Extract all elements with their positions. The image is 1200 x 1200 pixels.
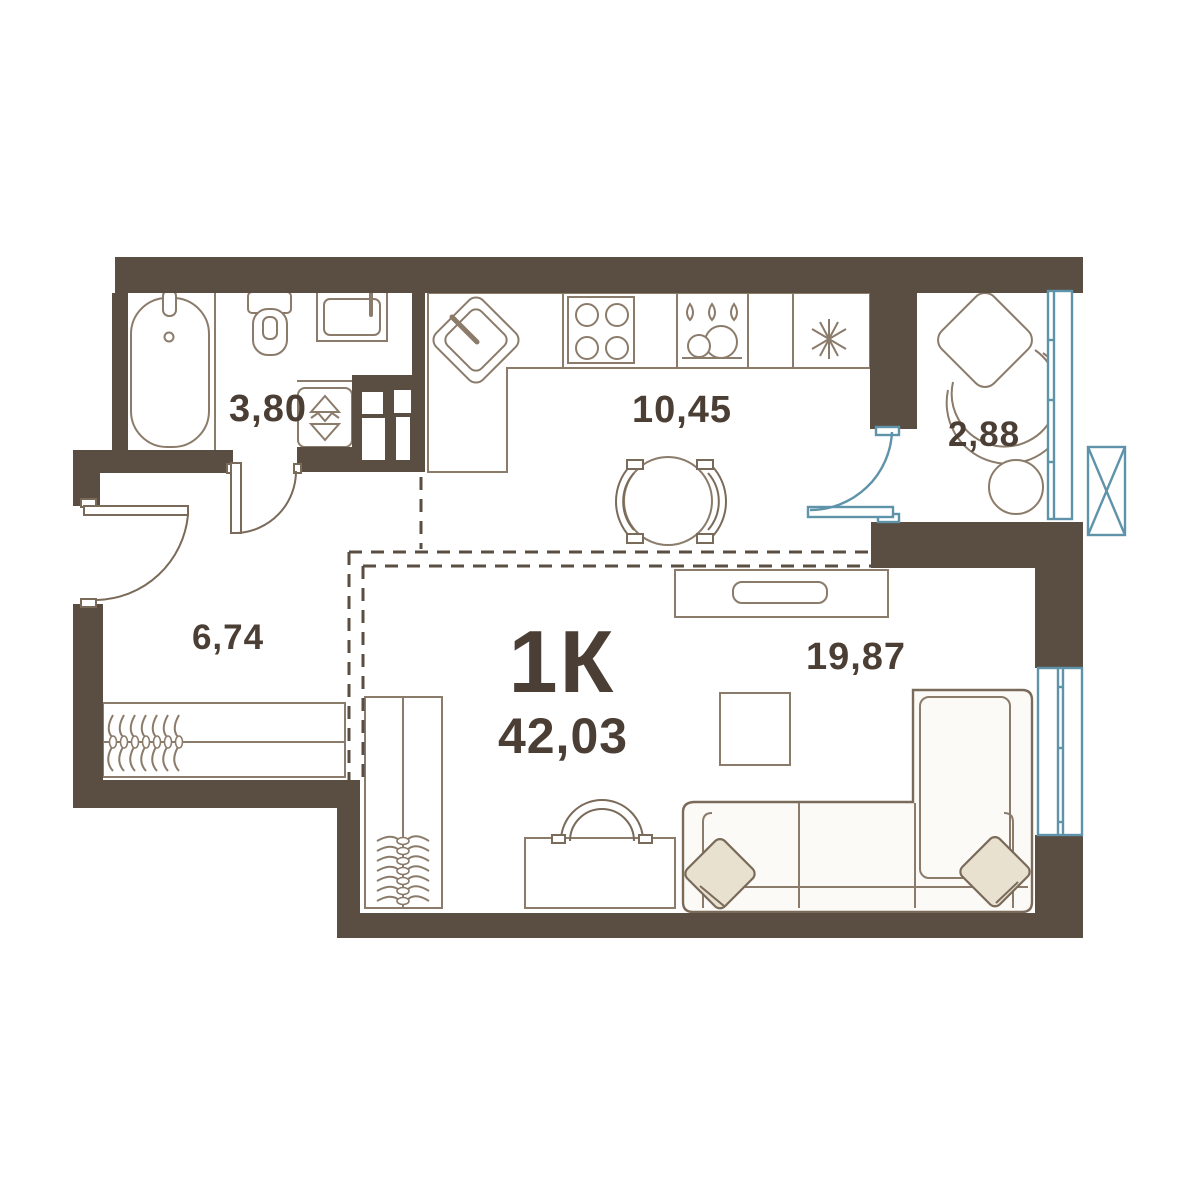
stove-icon bbox=[568, 297, 634, 363]
apartment-total-area-label: 42,03 bbox=[498, 708, 628, 764]
toilet-icon bbox=[248, 292, 291, 355]
tv-stand-icon bbox=[675, 570, 888, 617]
bathroom-sink-icon bbox=[317, 292, 387, 341]
room-area-label-living: 19,87 bbox=[806, 636, 906, 678]
floor-plan: 3,80 10,45 2,88 6,74 19,87 1К 42,03 bbox=[0, 0, 1200, 1200]
wardrobe-icon bbox=[365, 697, 442, 908]
room-area-label-balcony: 2,88 bbox=[948, 415, 1020, 454]
desk-chair-icon bbox=[552, 800, 652, 843]
room-area-label-kitchen: 10,45 bbox=[632, 389, 732, 431]
air-conditioner-icon bbox=[1088, 447, 1125, 535]
room-area-label-hallway: 6,74 bbox=[192, 618, 264, 657]
balcony-door-icon bbox=[808, 427, 899, 522]
dining-table-icon bbox=[624, 457, 712, 545]
entry-door-icon bbox=[81, 499, 188, 607]
room-area-label-bathroom: 3,80 bbox=[229, 388, 307, 430]
coat-rack-icon bbox=[103, 703, 345, 777]
desk-icon bbox=[525, 838, 675, 908]
balcony-table-icon bbox=[989, 460, 1043, 514]
living-room-window-icon bbox=[1038, 668, 1082, 835]
floor-plan-canvas: 3,80 10,45 2,88 6,74 19,87 1К 42,03 bbox=[0, 0, 1200, 1200]
bathtub-icon bbox=[124, 290, 215, 452]
apartment-type-label: 1К bbox=[509, 612, 616, 711]
bathroom-door-icon bbox=[227, 463, 301, 533]
balcony-glazing-window-icon bbox=[1048, 291, 1072, 519]
coffee-table-icon bbox=[720, 693, 790, 765]
